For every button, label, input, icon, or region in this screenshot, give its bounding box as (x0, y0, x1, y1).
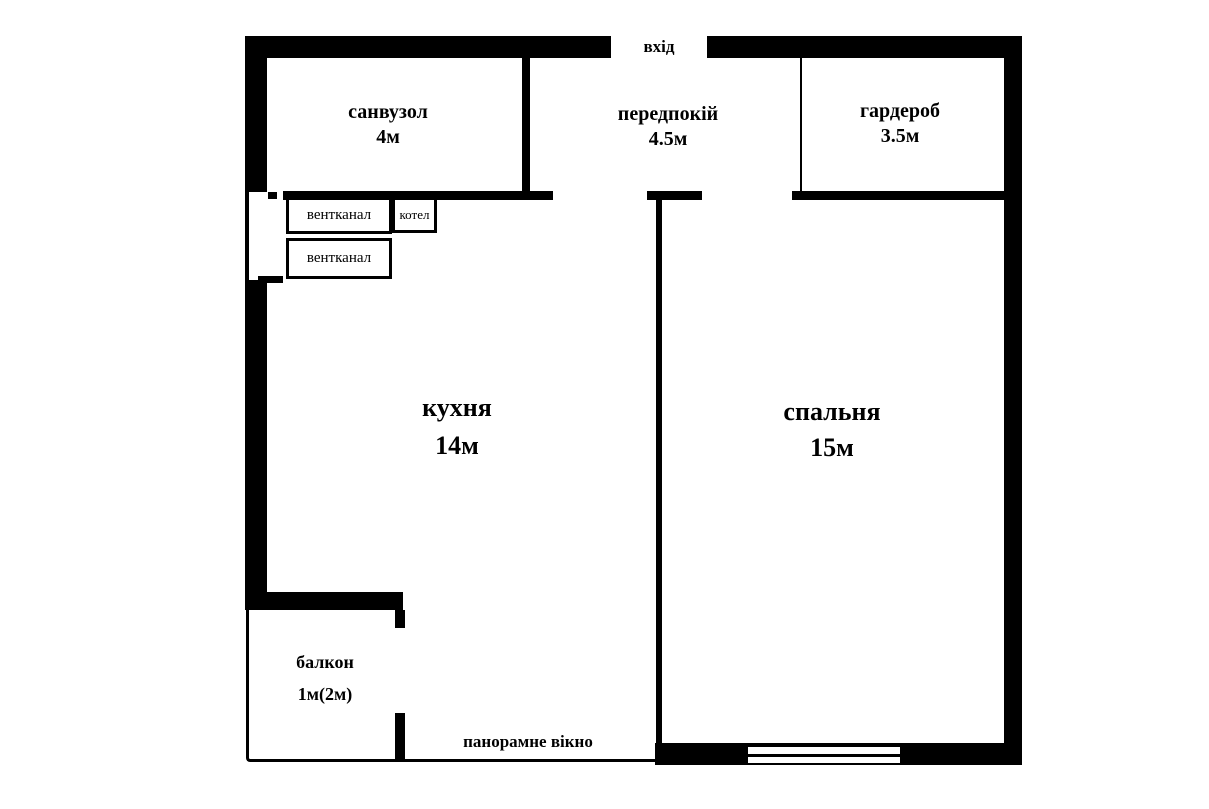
wall-hallway-kitchen (647, 191, 702, 200)
vent-channel-box-2: вентканал (286, 238, 392, 279)
room-area: 4м (376, 125, 400, 150)
room-label-wardrobe: гардероб 3.5м (812, 99, 988, 149)
wall-balcony-right-lower (395, 713, 405, 762)
room-name: кухня (422, 389, 492, 427)
room-name: балкон (296, 646, 354, 678)
vent-channel-label: вентканал (307, 250, 371, 267)
wall-bathroom-hallway-divider (522, 58, 530, 191)
room-name: гардероб (860, 99, 940, 124)
wall-balcony-top (245, 592, 403, 610)
wall-top-left-segment (245, 36, 611, 58)
panoramic-window-label: панорамне вікно (428, 731, 628, 753)
vent-channel-box-1: вентканал (286, 197, 392, 234)
vent-channel-label: вентканал (307, 207, 371, 224)
wall-wardrobe-bottom (792, 191, 1005, 200)
room-label-bathroom: санвузол 4м (300, 100, 476, 150)
bedroom-window-mullion-line (748, 754, 900, 757)
room-name: спальня (783, 394, 880, 430)
wall-left-lower (245, 280, 267, 592)
wall-left-thin-segment (245, 192, 249, 280)
wall-stub-lower (258, 276, 283, 283)
floor-plan: вентканал котел вентканал вхід санвузол … (0, 0, 1209, 809)
wall-top-right-segment (707, 36, 1022, 58)
wall-right (1004, 36, 1022, 765)
boiler-box: котел (392, 197, 437, 233)
room-area: 14м (435, 427, 479, 465)
wall-left-upper (245, 36, 267, 192)
wall-kitchen-bedroom-divider (656, 200, 662, 743)
room-label-balcony: балкон 1м(2м) (251, 646, 399, 710)
room-label-kitchen: кухня 14м (369, 389, 545, 465)
room-area: 3.5м (881, 124, 920, 149)
boiler-label: котел (400, 207, 430, 223)
room-area: 15м (810, 430, 854, 466)
room-label-hallway: передпокій 4.5м (580, 102, 756, 152)
room-name: санвузол (348, 100, 428, 125)
wall-balcony-right-upper (395, 610, 405, 628)
wardrobe-partition-line (800, 58, 802, 191)
entrance-label: вхід (614, 36, 704, 58)
wall-stub-upper (268, 192, 277, 199)
room-name: передпокій (618, 102, 718, 127)
room-area: 1м(2м) (298, 678, 353, 710)
room-label-bedroom: спальня 15м (744, 394, 920, 466)
panoramic-window-line (403, 759, 656, 762)
room-area: 4.5м (649, 127, 688, 152)
